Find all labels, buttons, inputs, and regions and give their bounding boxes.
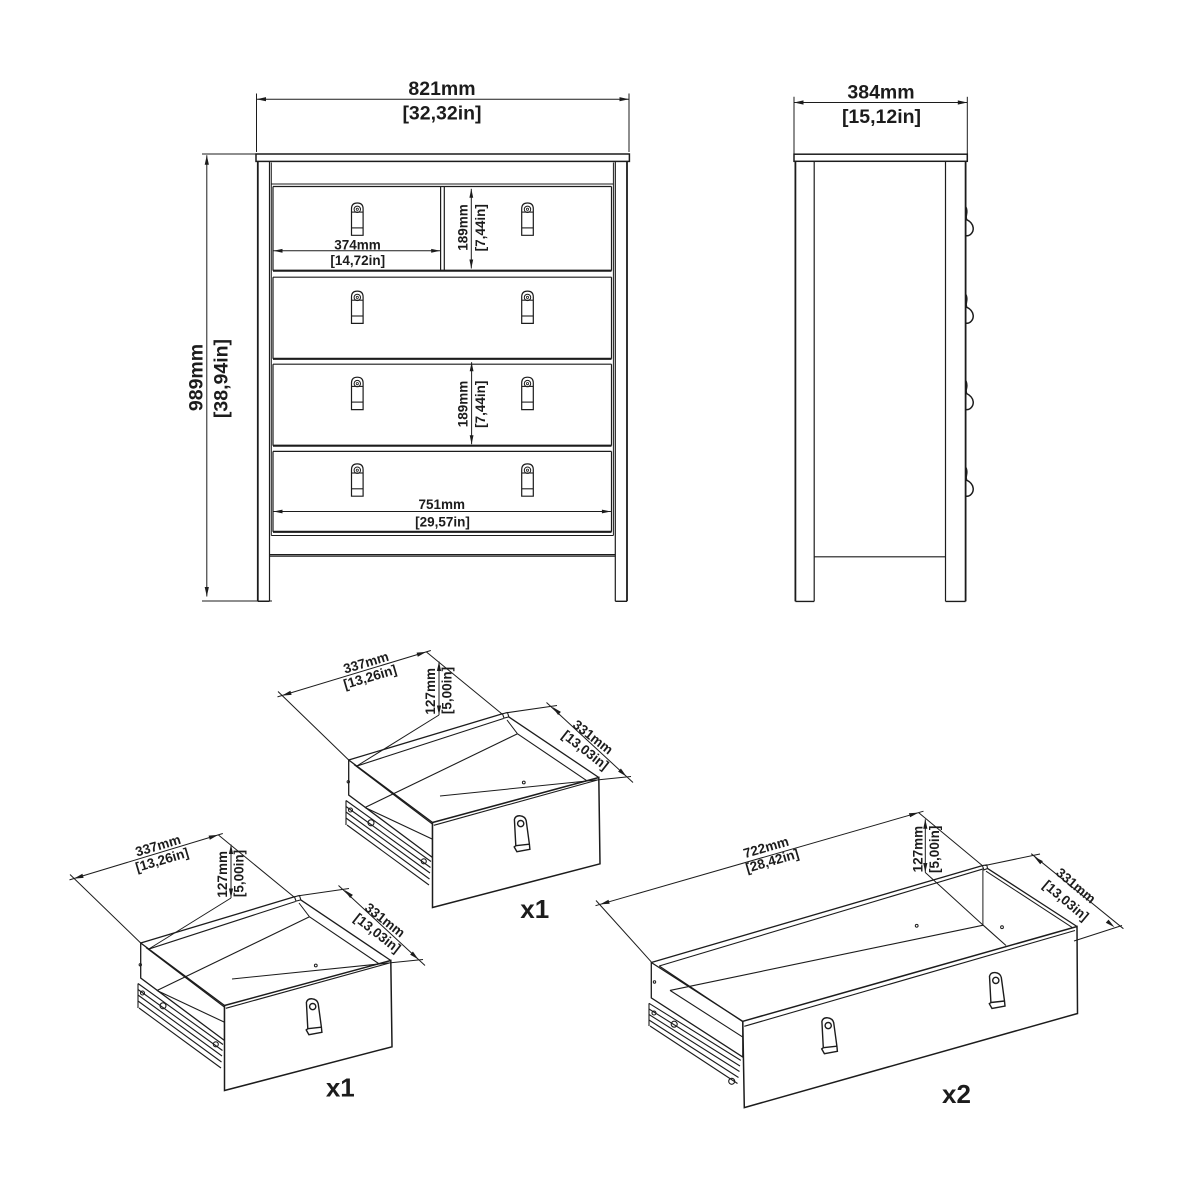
svg-text:[32,32in]: [32,32in] [402, 102, 481, 124]
svg-text:x2: x2 [942, 1079, 971, 1109]
svg-text:[7,44in]: [7,44in] [473, 204, 488, 251]
svg-text:[7,44in]: [7,44in] [473, 381, 488, 428]
svg-text:[5,00in]: [5,00in] [440, 667, 455, 714]
svg-text:[29,57in]: [29,57in] [415, 515, 470, 530]
svg-text:989mm: 989mm [185, 344, 207, 411]
svg-text:127mm: 127mm [423, 668, 438, 715]
svg-text:[5,00in]: [5,00in] [927, 826, 942, 873]
svg-text:384mm: 384mm [847, 81, 914, 103]
svg-text:[38,94in]: [38,94in] [210, 339, 232, 418]
svg-text:821mm: 821mm [408, 78, 475, 100]
svg-text:189mm: 189mm [456, 381, 471, 428]
svg-text:x1: x1 [520, 894, 549, 924]
svg-text:127mm: 127mm [911, 826, 926, 873]
svg-text:x1: x1 [326, 1073, 355, 1103]
svg-text:[14,72in]: [14,72in] [330, 253, 385, 268]
svg-text:189mm: 189mm [456, 204, 471, 251]
svg-text:374mm: 374mm [334, 238, 381, 253]
svg-text:[15,12in]: [15,12in] [842, 106, 921, 128]
svg-text:751mm: 751mm [419, 497, 466, 512]
